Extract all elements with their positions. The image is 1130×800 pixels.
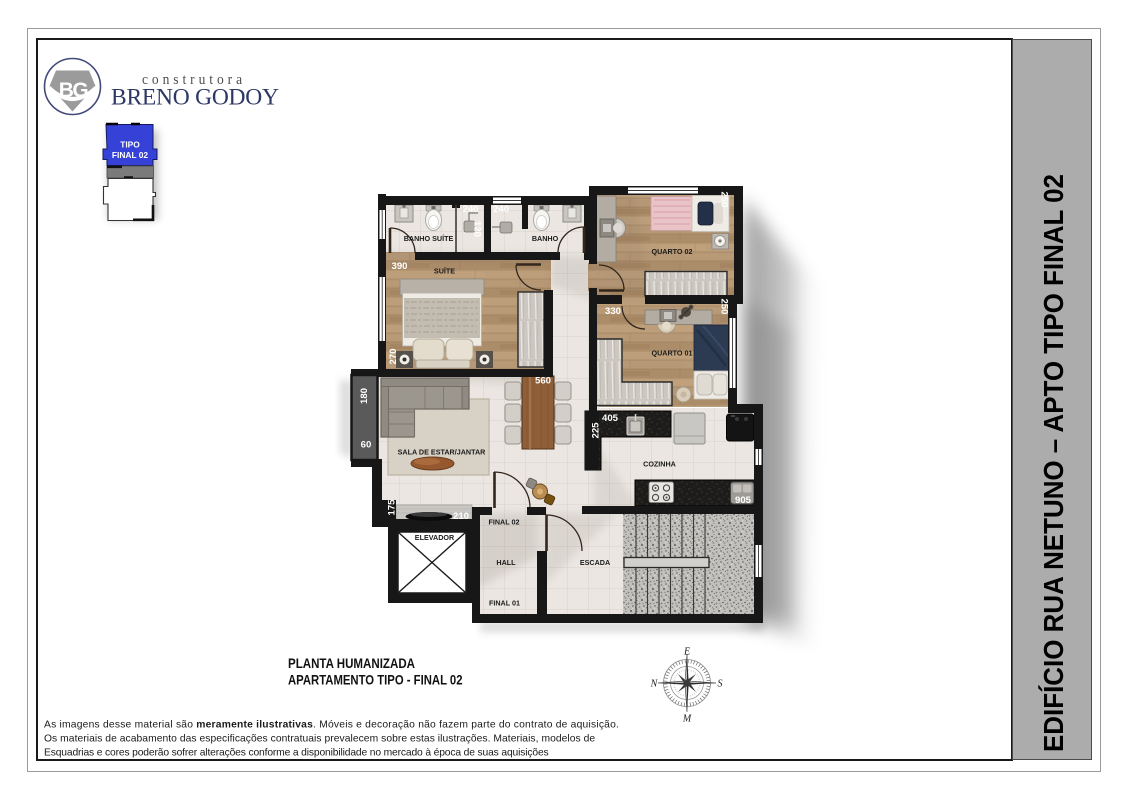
svg-text:240: 240 <box>462 204 478 215</box>
svg-text:120: 120 <box>472 221 483 237</box>
svg-text:EDIFÍCIO RUA NETUNO – APTO TIP: EDIFÍCIO RUA NETUNO – APTO TIPO FINAL 02 <box>1038 174 1069 752</box>
svg-text:60: 60 <box>361 440 372 451</box>
svg-text:FINAL 01: FINAL 01 <box>489 599 520 608</box>
svg-text:BANHO SUÍTE: BANHO SUÍTE <box>404 234 454 243</box>
svg-text:BRENO GODOY: BRENO GODOY <box>111 85 279 111</box>
svg-text:COZINHA: COZINHA <box>643 460 676 469</box>
svg-text:PLANTA HUMANIZADA: PLANTA HUMANIZADA <box>288 655 415 671</box>
svg-text:Esquadrias e cores poderão sof: Esquadrias e cores poderão sofrer altera… <box>44 748 549 759</box>
svg-text:270: 270 <box>388 348 399 364</box>
svg-text:Os materiais de acabamento das: Os materiais de acabamento das especific… <box>44 734 595 745</box>
svg-text:240: 240 <box>493 204 509 215</box>
svg-text:As imagens desse material são: As imagens desse material são meramente … <box>44 720 619 731</box>
svg-text:SALA DE ESTAR/JANTAR: SALA DE ESTAR/JANTAR <box>398 448 487 457</box>
svg-text:175: 175 <box>387 499 398 516</box>
svg-text:250: 250 <box>719 191 730 207</box>
svg-text:210: 210 <box>453 511 469 522</box>
svg-text:BG: BG <box>59 79 89 102</box>
svg-text:ESCADA: ESCADA <box>580 558 610 567</box>
svg-text:M: M <box>682 714 692 725</box>
svg-text:905: 905 <box>735 495 752 506</box>
svg-text:560: 560 <box>535 376 551 387</box>
svg-text:SUÍTE: SUÍTE <box>434 267 455 276</box>
svg-text:E: E <box>683 647 690 658</box>
svg-text:FINAL 02: FINAL 02 <box>488 518 519 527</box>
svg-text:BANHO: BANHO <box>532 234 559 243</box>
svg-text:TIPO: TIPO <box>120 140 140 150</box>
svg-text:S: S <box>718 679 723 690</box>
svg-text:FINAL 02: FINAL 02 <box>112 150 148 160</box>
svg-text:405: 405 <box>602 413 619 424</box>
svg-text:HALL: HALL <box>496 558 516 567</box>
svg-text:225: 225 <box>591 422 602 439</box>
svg-text:APARTAMENTO TIPO - FINAL 02: APARTAMENTO TIPO - FINAL 02 <box>288 672 463 688</box>
svg-text:250: 250 <box>719 298 730 314</box>
svg-text:N: N <box>650 679 659 690</box>
svg-text:QUARTO 01: QUARTO 01 <box>651 349 692 358</box>
svg-text:ELEVADOR: ELEVADOR <box>415 533 455 542</box>
svg-text:330: 330 <box>605 306 621 317</box>
svg-text:390: 390 <box>391 261 407 272</box>
svg-text:180: 180 <box>359 388 370 404</box>
svg-text:QUARTO 02: QUARTO 02 <box>651 247 692 256</box>
